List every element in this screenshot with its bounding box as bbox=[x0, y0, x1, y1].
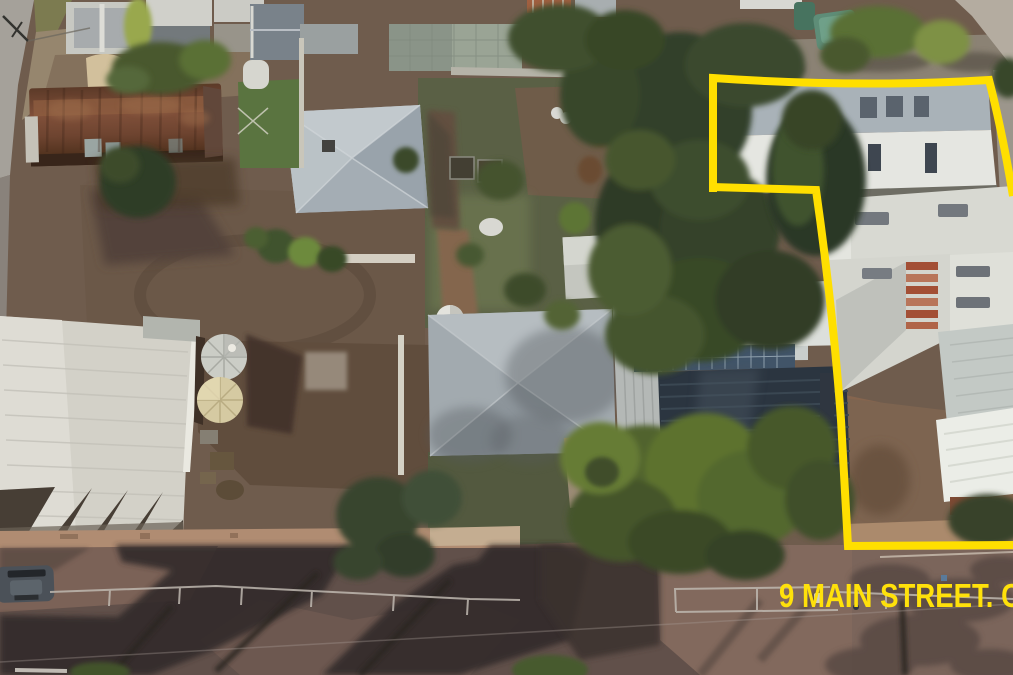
svg-text:9 MAIN STREET. C: 9 MAIN STREET. C bbox=[779, 577, 1013, 614]
